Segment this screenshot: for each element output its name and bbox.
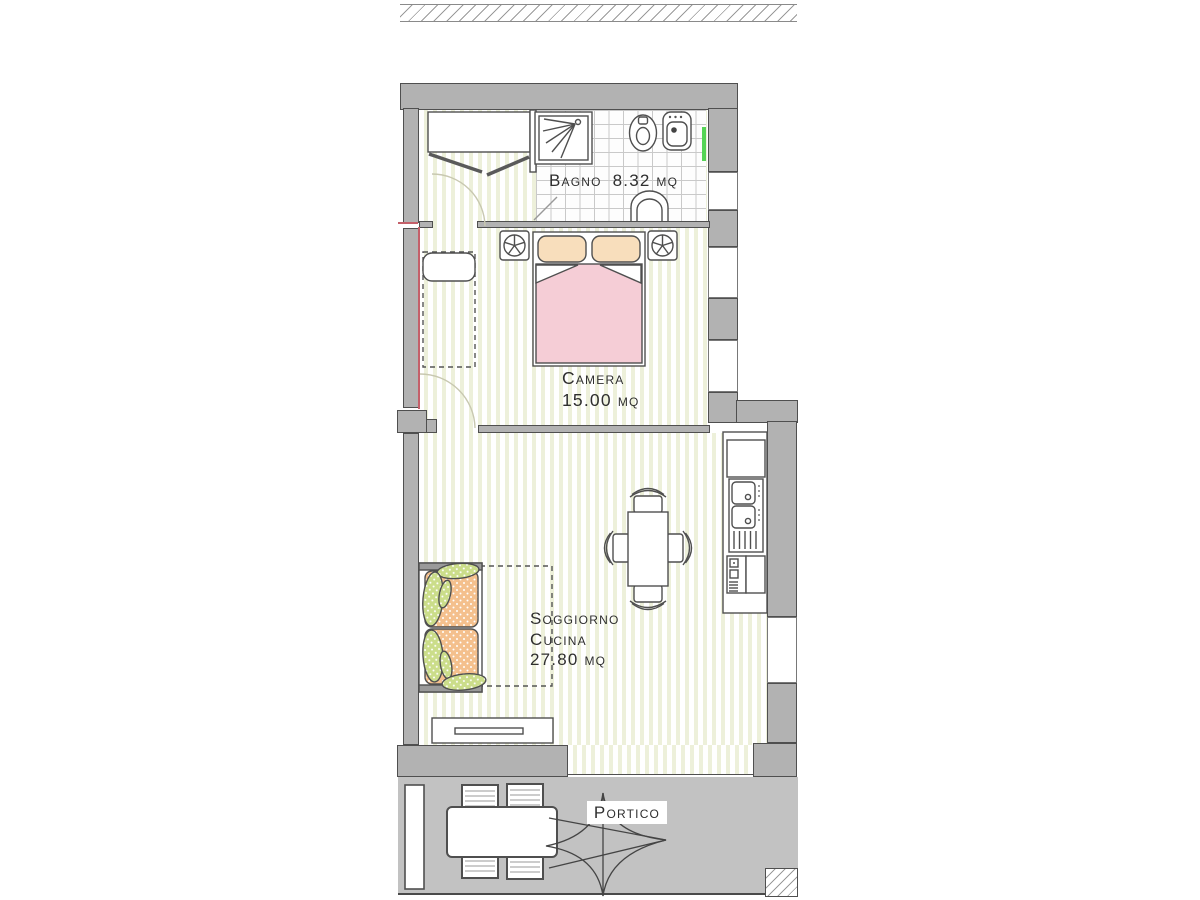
living-label: Soggiorno Cucina 27.80 mq — [530, 609, 619, 671]
window-marker — [702, 127, 706, 161]
red-reference-line-h — [398, 222, 418, 224]
living-name-1: Soggiorno — [530, 609, 619, 630]
living-area: 27.80 mq — [530, 650, 619, 671]
floor-plan: Bagno 8.32 mq Camera 15.00 mq Soggiorno … — [0, 0, 1200, 900]
door-threshold-floor — [568, 745, 753, 775]
bedroom-name: Camera — [562, 367, 640, 389]
wall-segment — [767, 683, 797, 743]
window-opening-3 — [708, 340, 738, 392]
wall-left-low — [403, 433, 419, 745]
wall-pier-notch — [426, 419, 437, 433]
wall-pier — [397, 410, 427, 433]
wall-stub — [419, 221, 433, 228]
wall-right-lower — [767, 421, 797, 617]
wall-left-top — [403, 108, 419, 223]
wall-segment — [753, 743, 797, 777]
wall-partition-living — [478, 425, 710, 433]
wall-segment — [708, 210, 738, 247]
window-opening-4 — [767, 617, 797, 683]
bedroom-label: Camera 15.00 mq — [562, 367, 640, 411]
wall-top — [400, 83, 738, 110]
hatched-pillar — [765, 868, 798, 897]
porch-label: Portico — [587, 801, 667, 824]
bedroom-area: 15.00 mq — [562, 389, 640, 411]
bathroom-name: Bagno — [549, 171, 602, 190]
wall-segment — [708, 298, 738, 340]
bathroom-area: 8.32 mq — [613, 171, 679, 190]
living-floor — [419, 433, 767, 745]
wall-bottom — [397, 745, 568, 777]
bathroom-label: Bagno 8.32 mq — [549, 171, 678, 191]
hatched-boundary-strip — [400, 4, 797, 22]
wall-segment — [708, 392, 738, 423]
wall-bath-right — [708, 108, 738, 172]
porch-floor — [398, 777, 798, 895]
living-name-2: Cucina — [530, 630, 619, 651]
wall-step-band — [736, 400, 798, 423]
red-reference-line-v — [418, 227, 420, 409]
window-opening-1 — [708, 172, 738, 210]
wall-partition-bathroom — [477, 221, 710, 228]
window-opening-2 — [708, 247, 738, 298]
wall-left-mid — [403, 228, 419, 408]
bathroom-floor — [536, 110, 706, 222]
